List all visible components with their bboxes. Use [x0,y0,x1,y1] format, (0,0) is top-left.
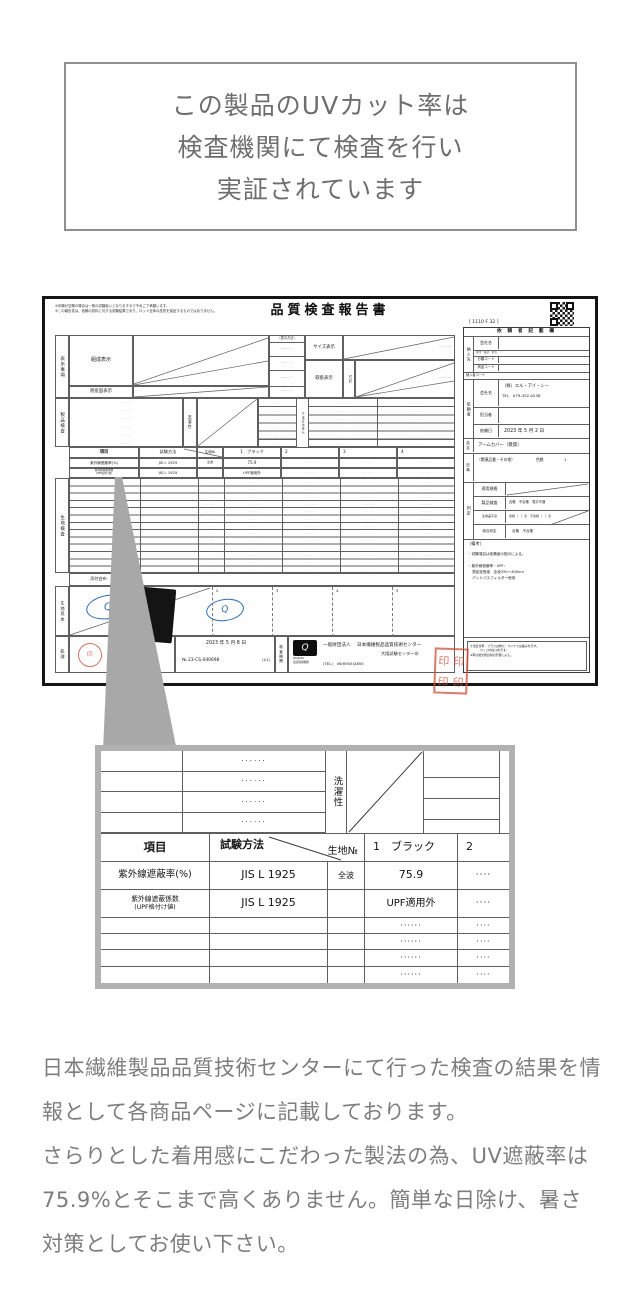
dots-cell: ······ [182,792,325,813]
color-count-label: 色数 [536,458,544,462]
requester-tel: TEL 079-452-0238 [502,394,540,398]
dots-cell: ···· [458,862,509,890]
dots-cell: ······ [365,950,458,966]
remarks-line: 測定波長域 全波290〜400nm [472,570,524,574]
dots-cell: ······ [281,458,339,468]
label-processing: 処理 [55,636,69,673]
qtec-blue-logo-icon: Q [205,596,246,623]
detail-th-col1: 1 ブラック [365,833,458,862]
fabric-defect-row: 生地品不良 合格（ ）点 不合格（ ）点 [474,511,589,525]
qr-finder-icon [566,302,574,310]
label-washing: 洗濯性 [183,398,197,447]
dots-cell: ······ [270,357,304,371]
dots-stack: ······ ······ ······ ······ ······ ·····… [282,479,340,574]
qr-code [549,301,575,327]
fabric-test-grid: ···· ···· ···· ···· ···· ···· ···· ···· … [69,478,455,573]
panel-header: 依 頼 者 記 載 欄 [464,328,589,337]
dots-stack: ····· ····· ····· ····· ····· ····· ····… [224,479,282,574]
detail-th-item: 項目 [101,833,210,862]
detail-blank-cell [101,918,210,934]
description-paragraph-1: 日本繊維製品品質技術センターにて行った検査の結果を情報として各商品ページに記載し… [42,1046,602,1134]
request-date: 2023 年 5 月 2 日 [504,429,544,435]
dots-cell: ······ [397,458,455,468]
detail-th-method-fabric: 試験方法 生地№ [210,833,365,862]
requester-panel: 依 頼 者 記 載 欄 納入先 会社名 住所・電話・担当 分類コード 商品コード… [463,327,590,673]
remarks-title: （備考） [467,542,484,547]
dots-stack: ······ ······ ······ ······ ······ ·····… [340,479,398,574]
dots-cell: ······ [365,934,458,950]
product-name-row: 品名 アームカバー（雑貨） [464,439,589,454]
inspection-report-image: ※印欄が空欄の場合は一般の試験扱いとなりますので予めご了承願います。 ※この報告… [42,296,598,686]
org-tel: (TEL) 06(6945)4855 [323,662,364,666]
dots-stack: ······ ······ ······ ······ ······ ·····… [309,399,377,448]
row2-value: UPF適用外 [223,468,281,478]
dots-stack: ······ ······ ······ ······ ······ ·····… [377,399,456,448]
label-size-display: サイズ表示 [305,335,343,360]
total-value: 合格 不合格 [512,529,533,533]
grid-line [140,479,141,574]
dots-cell: ······ [439,345,452,349]
remarks-line: ・紫外線遮蔽率・UPF： [468,564,507,568]
dots-cell: ······ [339,468,397,478]
field-label: 品名 [464,439,474,452]
label-judgement: 判定 [464,483,474,540]
th-col2: 2 [281,447,339,458]
field-label: 会社名 [474,337,499,349]
dots-cell: ······ [270,371,304,387]
requester-company-row: 会社名 （株）エル・アイ・シー TEL 079-452-0238 [474,380,589,408]
fabric-sample-strip: Q Q 2 3 4 5 [69,586,455,636]
processing-stamp-cell: 印 [69,636,145,673]
detail-row1-value: 75.9 [365,862,458,890]
report-detail-zoom-box: ······ ······ ······ ······ 洗濯性 項目 試験方法 … [95,745,515,989]
row2-method: JIS L 1925 [139,468,197,478]
label-dim-change: 寸法変化率％ [296,399,309,448]
field-label: 製品検査 [474,497,506,509]
detail-blank-cell [424,751,499,778]
detail-row2-band-empty [328,890,365,918]
dots-cell: ······ [182,772,325,793]
request-date-row: 依頼日 2023 年 5 月 2 日 [474,425,589,439]
label-fabric-test: 生地検査 [55,478,69,573]
detail-blank-cell [101,772,182,793]
dim-change-grid: ····· ····· ····· ····· ····· ····· 寸法変化… [258,398,455,447]
washing-diagonal-cell [197,398,258,447]
sample-number: 4 [336,588,338,593]
staff-row: 担当者 [474,408,589,425]
description-paragraph-2: さらりとした着用感にこだわった製法の為、UV遮蔽率は75.9%とそこまで高くあり… [42,1134,602,1266]
dots-stack: ····· ····· ····· ····· ····· ····· [259,399,296,448]
care-diagonal-cell: ······ [355,360,455,398]
fabric-defect-value: 合格（ ）点 不合格（ ）点 [509,515,551,518]
remarks-line: バンドパスフィルター使用 [472,576,515,580]
uv-claim-box: この製品のUVカット率は 検査機関にて検査を行い 実証されています [64,62,577,231]
row2-item-line2: (UPF格付け値) [96,473,112,476]
sample-divider [212,587,213,637]
dots-cell: ······ [182,751,325,772]
seal-char: 印 [437,673,449,689]
sample-number: 3 [276,588,278,593]
field-label: 総合判定 [474,525,506,538]
dots-cell: ······ [365,967,458,983]
total-judgement-row: 総合判定 合格 不合格 [474,525,589,540]
row1-value: 75.9 [223,458,281,468]
detail-th-method: 試験方法 [220,839,264,852]
method-column: 〔表示方法〕 ······ ······ ······ ······ [269,335,305,398]
row2-item: 紫外線遮蔽係数 (UPF格付け値) [69,468,139,478]
org-type: 一般財団法人 [323,643,351,648]
detail-blank-cell [101,967,210,983]
detail-blank-cell [424,778,499,799]
field-label: 依頼日 [474,425,499,437]
sample-divider [332,587,333,637]
grid-line [499,751,500,833]
detail-blank-cell [101,950,210,966]
report-pages: (1/1) [262,659,270,663]
detail-row2-item-line2: (UPF格付け値) [134,904,175,911]
org-branch: 大阪試験センター㊞ [381,652,419,657]
detail-blank-cell [328,950,365,966]
detail-blank-cell [101,792,182,813]
dots-stack: ······ ······ ······ ······ ······ ·····… [398,479,456,574]
label-care-display: 取扱表示 [305,360,343,398]
detail-row2-method: JIS L 1925 [210,890,328,918]
supplier-company-row: 会社名 [474,337,589,351]
seal-char: 印 [438,652,450,668]
article-row: 記事 （関連品番・その他） 色数 1 [464,454,589,483]
sample-divider [392,587,393,637]
label-supplier: 納入先 [464,337,474,373]
dots-cell: ···· [458,967,509,983]
origin-blank-cell [133,386,269,398]
detail-row2-value: UPF適用外 [365,890,458,918]
detail-blank-cell [328,934,365,950]
supplier-code-row: 納入者コード [464,373,589,380]
detail-blank-cell [210,950,328,966]
label-fabric-sample: 生地見本 [55,586,69,636]
detail-blank-cell [101,813,182,834]
label-origin: 原産国表示 [69,386,133,398]
field-label: 適用規格 [474,483,506,495]
dots-cell: ······ [270,387,304,397]
th-col3: 3 [339,447,397,458]
field-label: 会社名 [474,380,499,406]
qtec-blue-logo-icon: Q [84,591,131,622]
detail-blank-cell [328,967,365,983]
dots-cell: ···· [458,934,509,950]
form-code: [ 1110 F 32 ] [469,320,499,325]
composition-blank-cell [133,335,269,386]
row1-band: 全波 [197,458,223,468]
detail-washing-diagonal [347,751,424,833]
label-requester: 依頼者 [464,380,474,439]
label-fuki: 付記 [343,360,355,398]
report-date: 2023 年 5 月 8 日 [176,641,276,647]
requester-company: （株）エル・アイ・シー [502,385,549,390]
inspection-org-cell: Q ISO9001 認証取得機関 一般財団法人 日本繊維製品品質技術センター 大… [288,636,455,673]
detail-blank-cell [328,918,365,934]
dots-cell: ···· [458,950,509,966]
report-title: 品質検査報告書 [250,304,410,318]
field-label: 分類コード [474,357,499,363]
field-label: 商品コード [474,365,499,371]
class-code-row: 分類コード [474,357,589,365]
sample-number: 2 [216,588,218,593]
article-value: （関連品番・その他） [477,458,515,462]
sample-number: 5 [396,588,398,593]
footnote-line: ※率は蛍光増白剤の影響による。 [470,653,539,657]
claim-line-3: 実証されています [66,169,575,211]
detail-label-washing: 洗濯性 [325,751,347,833]
detail-blank-cell [210,918,328,934]
report-number: № 23-CS-040698 [182,658,219,663]
th-col1-black: 1 ブラック [223,447,281,458]
row1-item: 紫外線遮蔽率(%) [69,458,139,468]
footnote-box: 寸法変化率：プラスは伸び、マイナスは縮みを示す。 カッコ内は㎝を示す。 ※率は蛍… [467,641,587,671]
row1-method: JIS L 1925 [139,458,197,468]
remarks-line: ・試験項目は依頼者の指示による。 [468,552,525,556]
dots-cell: ······ [365,918,458,934]
dots-cell: ······ [439,376,452,380]
th-item: 項目 [69,447,139,458]
label-inspection-org: 検査機関 [275,636,288,673]
attached-cloth-row: 添付白布 [69,573,455,586]
red-seal-stamp-icon: 印 印 印 印 [433,647,469,694]
iso-line2: 認証取得機関 [293,662,309,665]
detail-blank-cell [210,967,328,983]
standard-row: 適用規格 [474,483,589,497]
label-composition: 組成表示 [69,335,133,386]
dots-cell: ······ [397,468,455,478]
claim-line-1: この製品のUVカット率は [66,85,575,127]
color-count: 1 [564,458,566,462]
seal-char: 印 [452,674,464,690]
report-disclaimer-2: ※この報告書は、依頼の試料に対する試験結果であり、ロット全体の品質を保証するもの… [55,310,217,314]
dots-stack: ···· ···· ···· ···· ···· ···· ···· ···· … [198,479,224,574]
detail-row2-item: 紫外線遮蔽係数 (UPF格付け値) [101,890,210,918]
item-code-row: 商品コード [474,365,589,373]
field-label: 生地品不良 [474,511,506,523]
dots-cell: ···· [458,918,509,934]
product-test-dots: ······ ······ ······ ······ ······ ·····… [69,398,183,447]
detail-th-fabric-no: 生地№ [328,846,358,858]
detail-blank-cell [101,751,182,772]
field-label: 記事 [464,454,474,481]
sample-divider [272,587,273,637]
seal-char: 印 [453,653,465,669]
detail-blank-cell [210,934,328,950]
label-product-test: 製品検査 [55,398,69,447]
detail-row2-item-line1: 紫外線遮蔽係数 [131,896,179,904]
qr-finder-icon [550,302,558,310]
detail-row1-item: 紫外線遮蔽率(%) [101,862,210,890]
label-display-items: 表示事項 [55,335,69,398]
size-diagonal-cell: ······ [343,335,455,360]
dots-cell: ······ [182,813,325,834]
product-test-row: 製品検査 合格 不合格 表示不適 [474,497,589,511]
qtec-black-logo-icon: Q [293,640,317,656]
row2-band-empty [197,468,223,478]
grid-line [114,637,115,674]
report-number-cell: 2023 年 5 月 8 日 № 23-CS-040698 (1/1) [175,636,275,673]
description-text-block: 日本繊維製品品質技術センターにて行った検査の結果を情報として各商品ページに記載し… [42,1046,602,1266]
detail-blank-cell [101,934,210,950]
th-method: 試験方法 [139,447,197,458]
th-fabric-no: 生地№ [197,447,223,458]
dots-cell: ···· [458,890,509,918]
detail-row1-method: JIS L 1925 [210,862,328,890]
dots-cell: ······ [270,343,304,357]
th-col4: 4 [397,447,455,458]
remarks-block: （備考） ・試験項目は依頼者の指示による。 ・紫外線遮蔽率・UPF： 測定波長域… [464,540,589,638]
product-test-value: 合格 不合格 表示不適 [509,501,545,505]
detail-blank-cell [424,799,499,820]
field-label: 担当者 [474,408,499,423]
dots-cell: ······ [339,458,397,468]
label-display-method: 〔表示方法〕 [270,336,304,343]
org-name: 日本繊維製品品質技術センター [357,643,421,648]
product-name: アームカバー（雑貨） [478,443,522,448]
detail-row1-band: 全波 [328,862,365,890]
fabric-swatch [136,587,177,644]
qr-finder-icon [550,318,558,326]
dots-cell: ······ [281,468,339,478]
label-attached-cloth: 添付白布 [70,574,128,585]
detail-th-col2: 2 [458,833,509,862]
red-circle-stamp-icon: 印 [76,641,103,668]
claim-line-2: 検査機関にて検査を行い [66,127,575,169]
